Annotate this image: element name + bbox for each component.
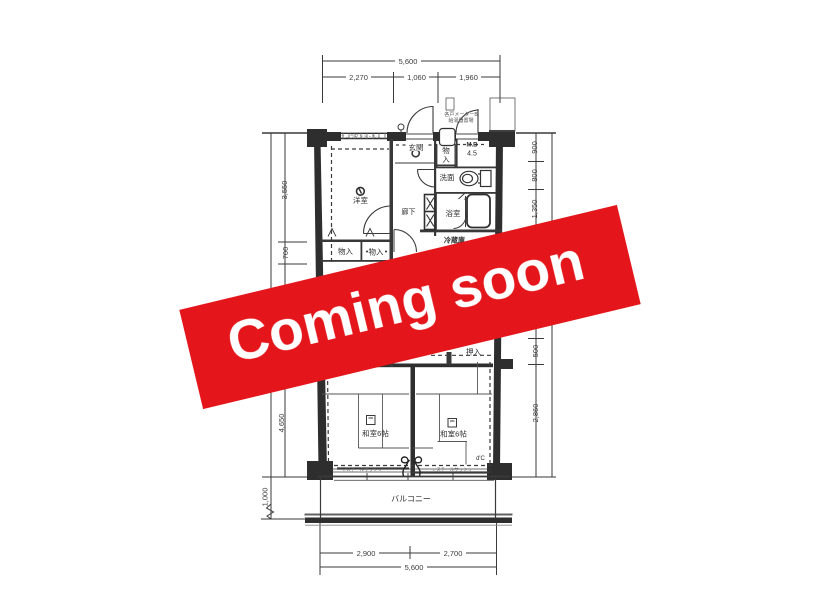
svg-text:浴室: 浴室 [446, 208, 461, 218]
svg-text:和室6帖: 和室6帖 [362, 428, 389, 438]
svg-text:800: 800 [530, 169, 539, 182]
svg-text:M.B: M.B [467, 143, 479, 149]
svg-text:押入: 押入 [466, 347, 481, 357]
svg-text:物: 物 [442, 145, 450, 155]
svg-text:バルコニー: バルコニー [391, 495, 431, 504]
svg-text:給湯器置場: 給湯器置場 [448, 117, 473, 124]
svg-text:2,270: 2,270 [349, 73, 368, 82]
svg-text:500: 500 [531, 345, 540, 358]
svg-text:1,350: 1,350 [530, 200, 539, 219]
svg-text:2,700: 2,700 [444, 549, 463, 558]
svg-text:2,860: 2,860 [531, 404, 540, 423]
svg-text:4,650: 4,650 [277, 414, 286, 433]
svg-text:700: 700 [281, 247, 290, 260]
svg-text:5,600: 5,600 [399, 57, 418, 66]
svg-text:2,900: 2,900 [357, 549, 376, 558]
svg-text:物入: 物入 [338, 246, 353, 256]
svg-text:洋室: 洋室 [353, 195, 368, 205]
svg-text:3,550: 3,550 [280, 181, 289, 200]
svg-text:1,000: 1,000 [261, 488, 270, 507]
svg-text:入: 入 [442, 155, 450, 164]
svg-text:和室6帖: 和室6帖 [440, 429, 467, 439]
svg-text:各戸メーターB: 各戸メーターB [444, 111, 478, 118]
svg-text:d'C: d'C [476, 456, 485, 462]
svg-text:4.5: 4.5 [467, 151, 477, 158]
svg-text:廊下: 廊下 [402, 207, 416, 216]
svg-text:洗面: 洗面 [440, 172, 455, 182]
svg-text:玄関: 玄関 [409, 142, 424, 152]
svg-text:5,600: 5,600 [405, 563, 424, 572]
svg-text:900: 900 [530, 141, 539, 154]
svg-text:1,060: 1,060 [407, 73, 426, 82]
svg-text:物入: 物入 [369, 247, 384, 257]
svg-text:1,960: 1,960 [459, 73, 478, 82]
